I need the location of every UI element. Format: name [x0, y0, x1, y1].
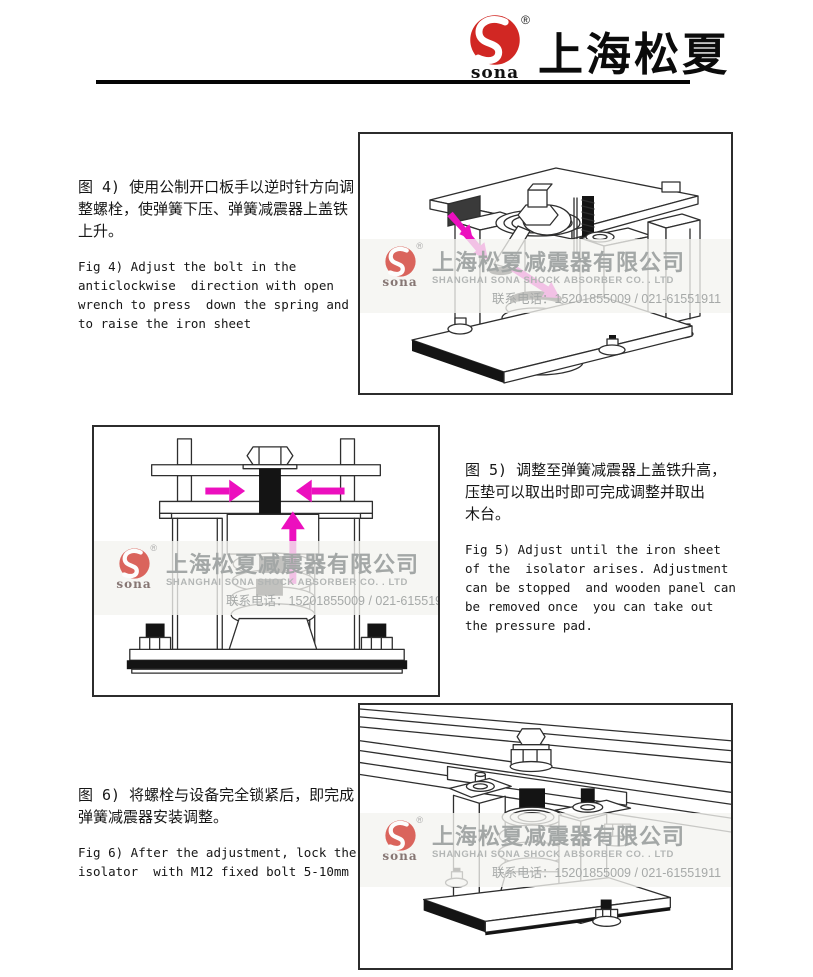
document-page: ® sona 上海松夏 图 4) 使用公制开口板手以逆时针方向调 整螺栓，使弹簧…	[0, 0, 813, 977]
watermark-phone: 联系电话：15201855009 / 021-61551911	[226, 590, 440, 609]
registered-mark: ®	[416, 815, 423, 825]
sona-mark-icon	[384, 819, 417, 852]
figure4-caption-cn: 图 4) 使用公制开口板手以逆时针方向调 整螺栓，使弹簧下压、弹簧减震器上盖铁 …	[78, 176, 380, 242]
watermark-company-cn: 上海松夏减震器有限公司	[432, 245, 721, 277]
figure6-caption: 图 6) 将螺栓与设备完全锁紧后，即完成 弹簧减震器安装调整。 Fig 6) A…	[78, 784, 380, 881]
registered-mark: ®	[521, 13, 530, 27]
base-plate	[127, 649, 407, 673]
registered-mark: ®	[150, 543, 157, 553]
watermark-company-cn: 上海松夏减震器有限公司	[432, 819, 721, 851]
watermark: ® sona 上海松夏减震器有限公司 SHANGHAI SONA SHOCK A…	[360, 239, 731, 313]
header-rule	[96, 80, 690, 84]
brand-title: 上海松夏	[538, 18, 730, 83]
watermark-sona-logo: ® sona	[108, 547, 160, 591]
m12-fixing-bolt	[510, 729, 552, 772]
watermark-sona-text: sona	[374, 275, 426, 289]
figure4-image: ® sona 上海松夏减震器有限公司 SHANGHAI SONA SHOCK A…	[358, 132, 733, 395]
registered-mark: ®	[416, 241, 423, 251]
figure5-caption: 图 5) 调整至弹簧减震器上盖铁升高， 压垫可以取出时即可完成调整并取出 木台。…	[465, 459, 767, 635]
figure5-image: ® sona 上海松夏减震器有限公司 SHANGHAI SONA SHOCK A…	[92, 425, 440, 697]
figure5-caption-cn: 图 5) 调整至弹簧减震器上盖铁升高， 压垫可以取出时即可完成调整并取出 木台。	[465, 459, 767, 525]
figure6-image: ® sona 上海松夏减震器有限公司 SHANGHAI SONA SHOCK A…	[358, 703, 733, 970]
watermark-phone: 联系电话：15201855009 / 021-61551911	[492, 862, 721, 881]
watermark: ® sona 上海松夏减震器有限公司 SHANGHAI SONA SHOCK A…	[360, 813, 731, 887]
figure4-caption-en: Fig 4) Adjust the bolt in the anticlockw…	[78, 257, 380, 333]
figure5-caption-en: Fig 5) Adjust until the iron sheet of th…	[465, 540, 767, 635]
watermark-text: 上海松夏减震器有限公司 SHANGHAI SONA SHOCK ABSORBER…	[432, 245, 721, 307]
sona-mark-icon	[468, 13, 522, 67]
watermark-text: 上海松夏减震器有限公司 SHANGHAI SONA SHOCK ABSORBER…	[432, 819, 721, 881]
watermark: ® sona 上海松夏减震器有限公司 SHANGHAI SONA SHOCK A…	[94, 541, 438, 615]
watermark-company-cn: 上海松夏减震器有限公司	[166, 547, 440, 579]
figure6-caption-en: Fig 6) After the adjustment, lock the is…	[78, 843, 380, 881]
watermark-text: 上海松夏减震器有限公司 SHANGHAI SONA SHOCK ABSORBER…	[166, 547, 440, 609]
figure6-caption-cn: 图 6) 将螺栓与设备完全锁紧后，即完成 弹簧减震器安装调整。	[78, 784, 380, 828]
sona-mark-icon	[118, 547, 151, 580]
sona-mark-icon	[384, 245, 417, 278]
watermark-phone: 联系电话：15201855009 / 021-61551911	[492, 288, 721, 307]
watermark-sona-logo: ® sona	[374, 245, 426, 289]
watermark-sona-logo: ® sona	[374, 819, 426, 863]
figure4-caption: 图 4) 使用公制开口板手以逆时针方向调 整螺栓，使弹簧下压、弹簧减震器上盖铁 …	[78, 176, 380, 333]
sona-logo: ® sona	[460, 13, 530, 81]
watermark-sona-text: sona	[374, 849, 426, 863]
watermark-sona-text: sona	[108, 577, 160, 591]
watermark-company-en: SHANGHAI SONA SHOCK ABSORBER CO. . LTD	[166, 577, 440, 588]
